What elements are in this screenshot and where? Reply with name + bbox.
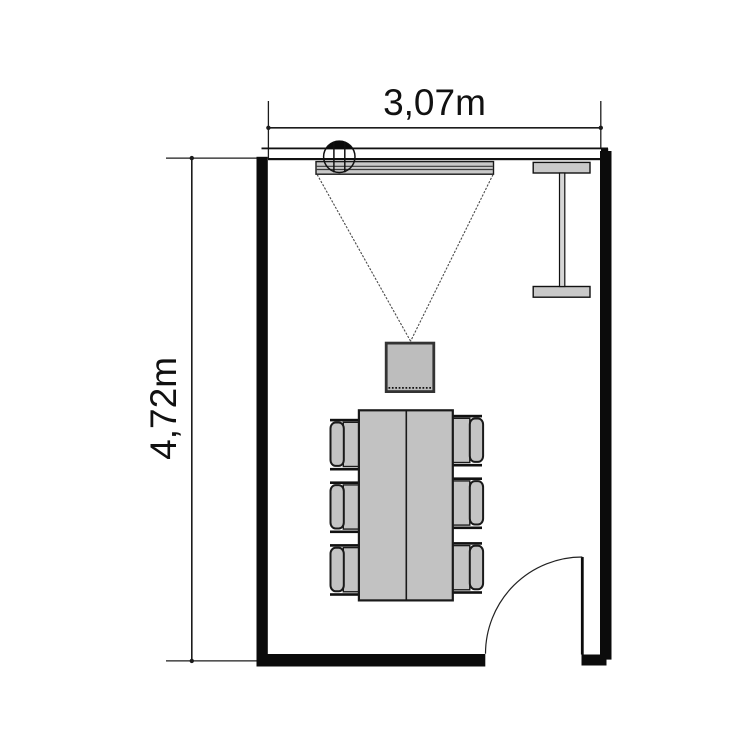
svg-text:4,72m: 4,72m — [143, 357, 184, 460]
svg-text:3,07m: 3,07m — [383, 82, 486, 123]
